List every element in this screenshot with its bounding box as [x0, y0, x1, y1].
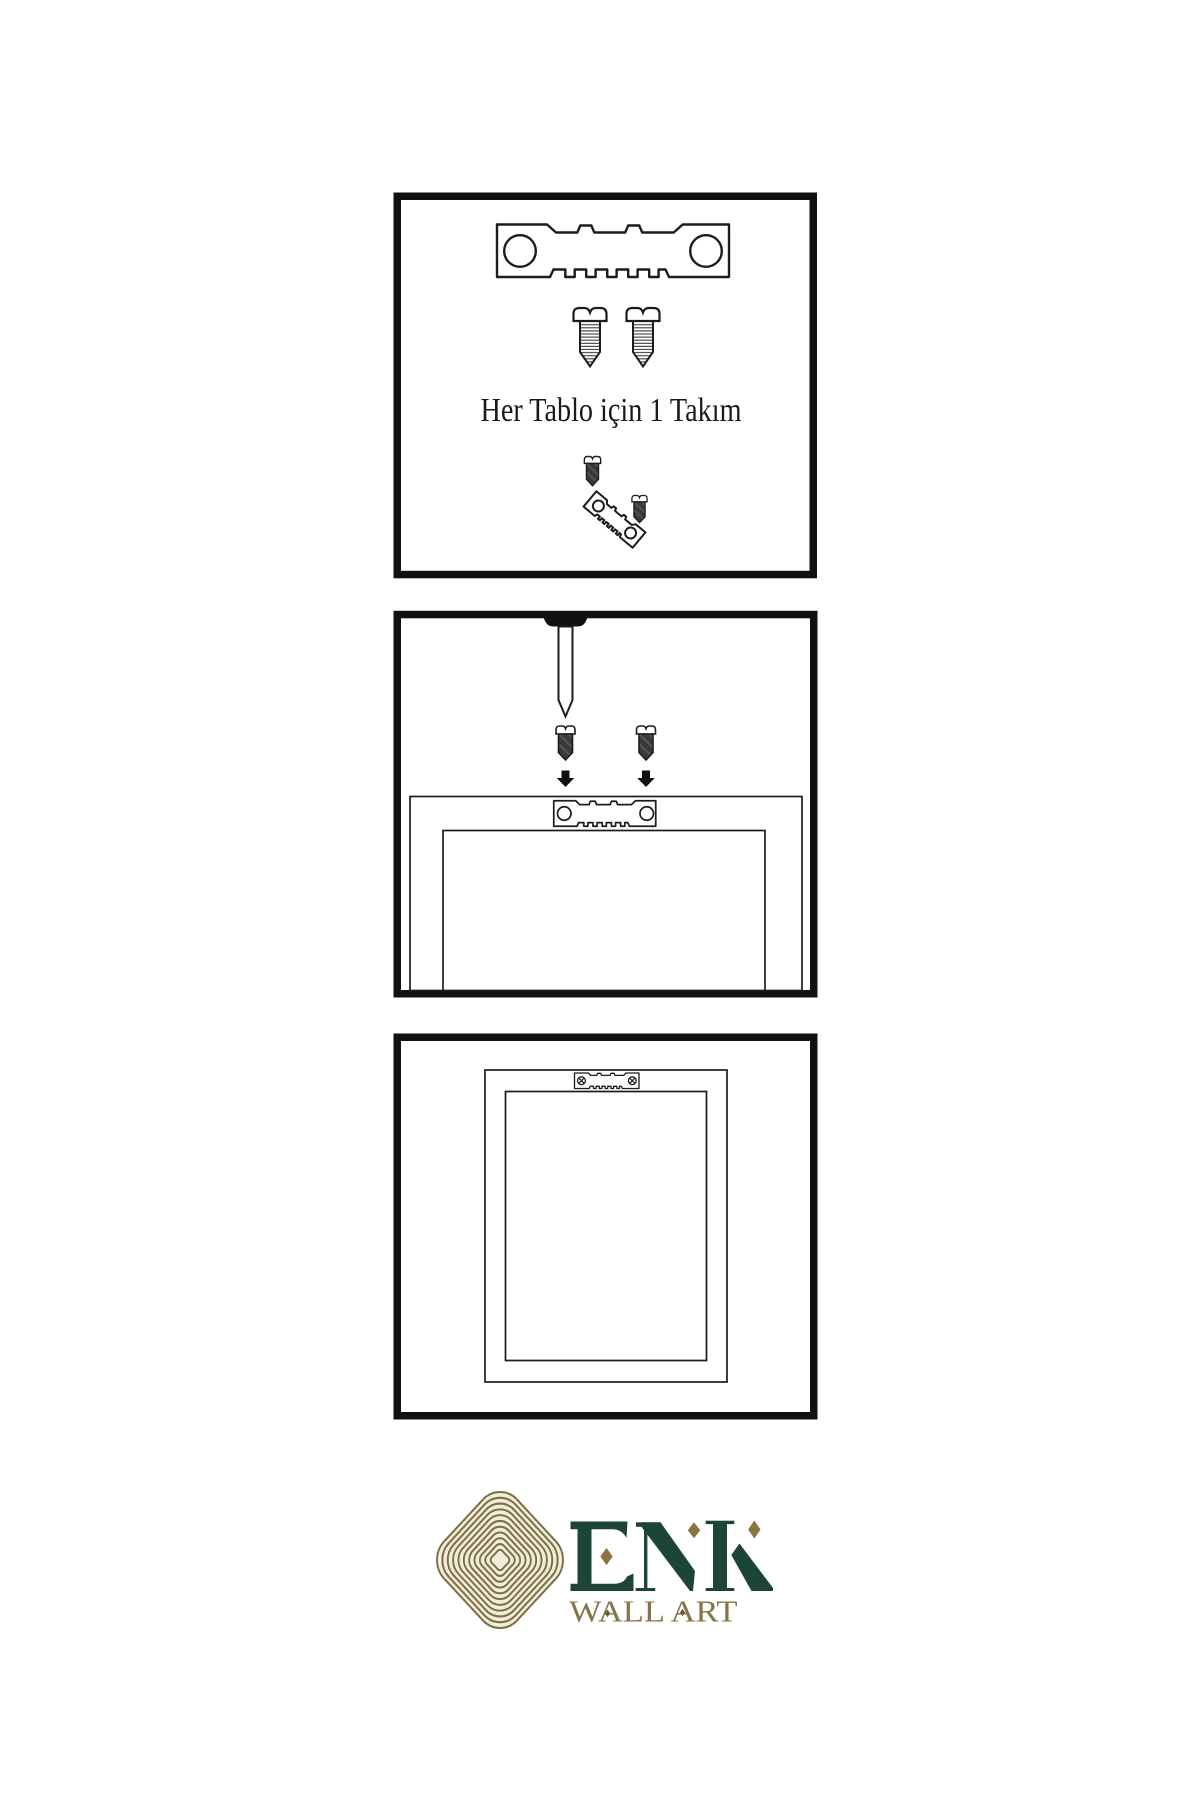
svg-text:Her Tablo için 1 Takım: Her Tablo için 1 Takım: [481, 392, 742, 429]
svg-text:WALL ART: WALL ART: [569, 1594, 738, 1629]
